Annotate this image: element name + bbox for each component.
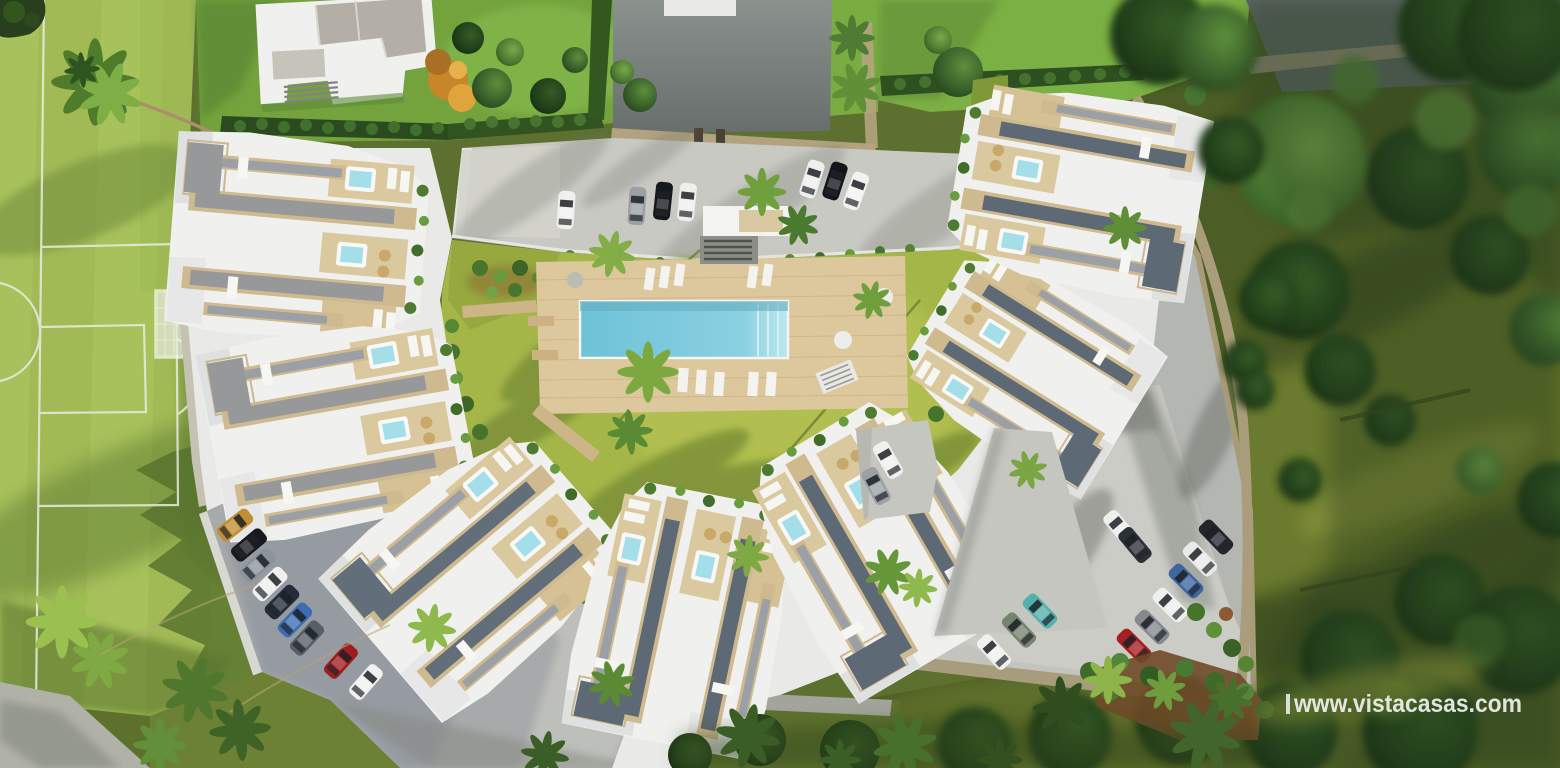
svg-text:www.vistacasas.com: www.vistacasas.com	[1293, 690, 1522, 718]
